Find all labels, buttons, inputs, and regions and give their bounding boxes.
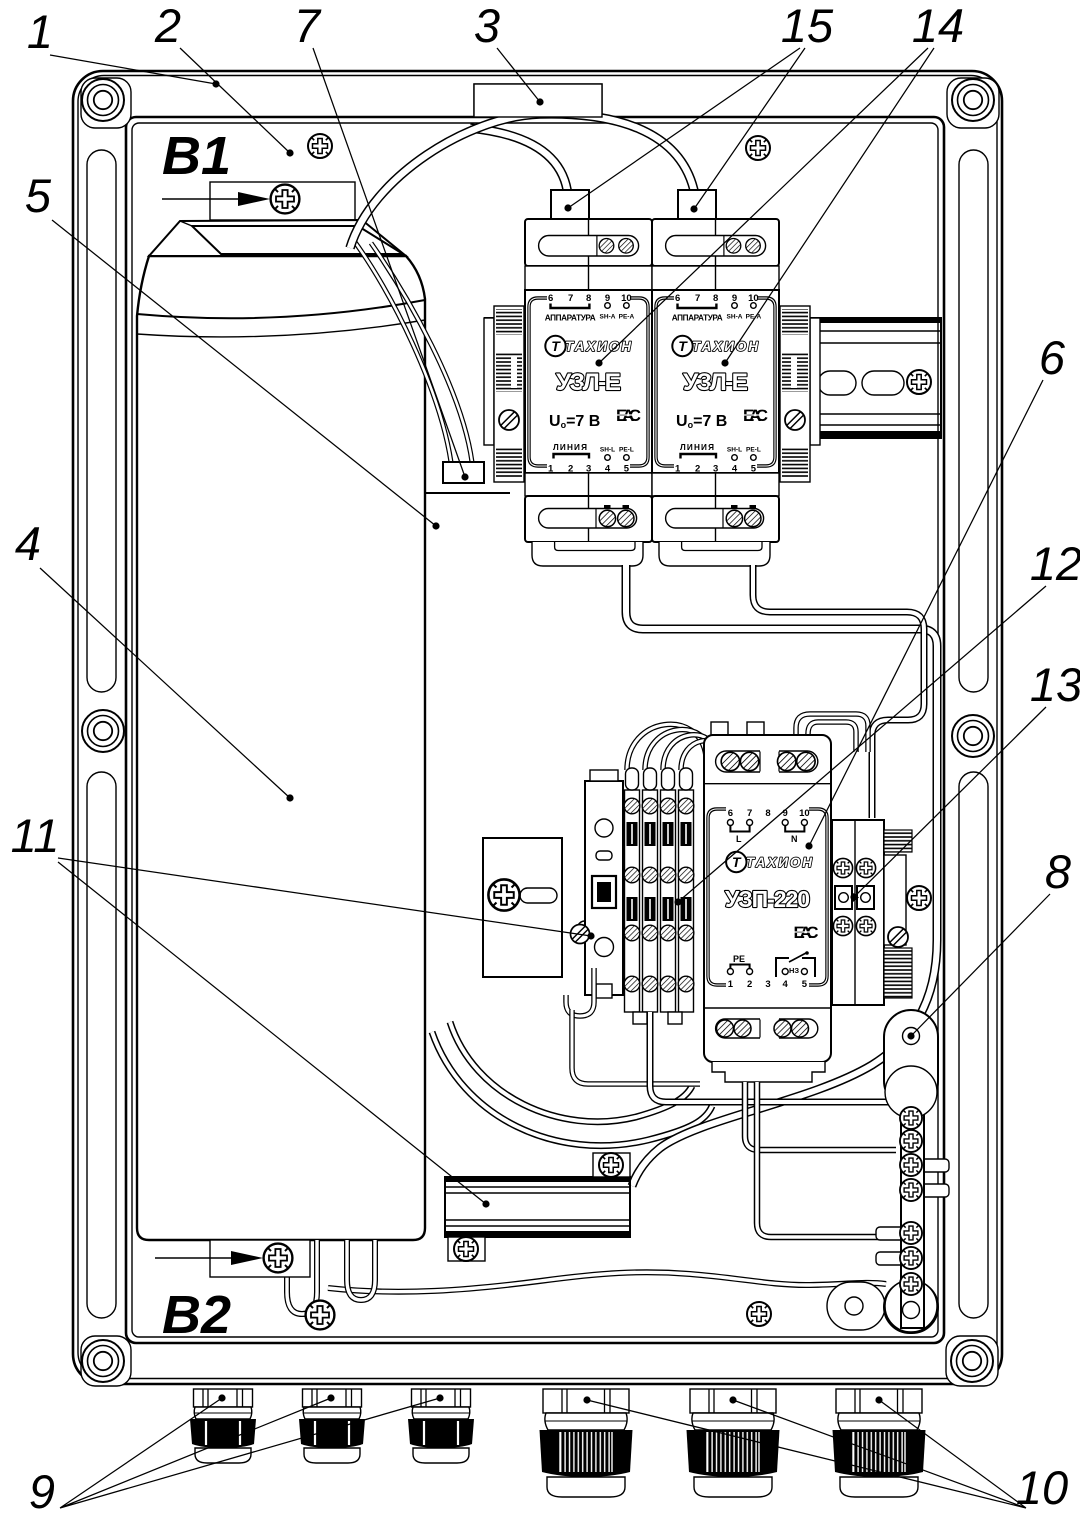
svg-text:7: 7: [294, 0, 322, 52]
svg-text:15: 15: [781, 0, 834, 52]
svg-text:Т: Т: [732, 854, 742, 870]
svg-text:13: 13: [1030, 658, 1080, 711]
svg-text:1: 1: [27, 5, 53, 58]
svg-text:3: 3: [474, 0, 500, 52]
svg-text:10: 10: [799, 808, 810, 819]
svg-text:11: 11: [11, 809, 60, 862]
svg-text:6: 6: [1039, 331, 1066, 384]
svg-text:7: 7: [747, 808, 752, 819]
svg-text:12: 12: [1030, 537, 1080, 590]
svg-text:L: L: [736, 834, 742, 844]
svg-text:3: 3: [765, 979, 770, 990]
svg-text:УЗП-220: УЗП-220: [725, 886, 810, 912]
svg-text:8: 8: [1045, 845, 1071, 898]
svg-text:4: 4: [783, 979, 789, 990]
svg-text:1: 1: [728, 979, 734, 990]
svg-text:ТАХИОН: ТАХИОН: [746, 855, 812, 870]
svg-text:4: 4: [15, 517, 41, 570]
svg-text:14: 14: [912, 0, 964, 52]
svg-text:N: N: [791, 834, 798, 844]
svg-text:5: 5: [802, 979, 808, 990]
svg-text:9: 9: [29, 1465, 55, 1518]
svg-text:8: 8: [765, 808, 770, 819]
svg-text:РЕ: РЕ: [733, 954, 745, 964]
svg-text:B2: B2: [162, 1285, 231, 1345]
svg-text:2: 2: [154, 0, 181, 52]
svg-text:2: 2: [747, 979, 752, 990]
svg-text:НЗ: НЗ: [789, 966, 799, 975]
svg-text:6: 6: [728, 808, 733, 819]
svg-text:5: 5: [25, 169, 52, 222]
svg-text:B1: B1: [162, 126, 231, 186]
